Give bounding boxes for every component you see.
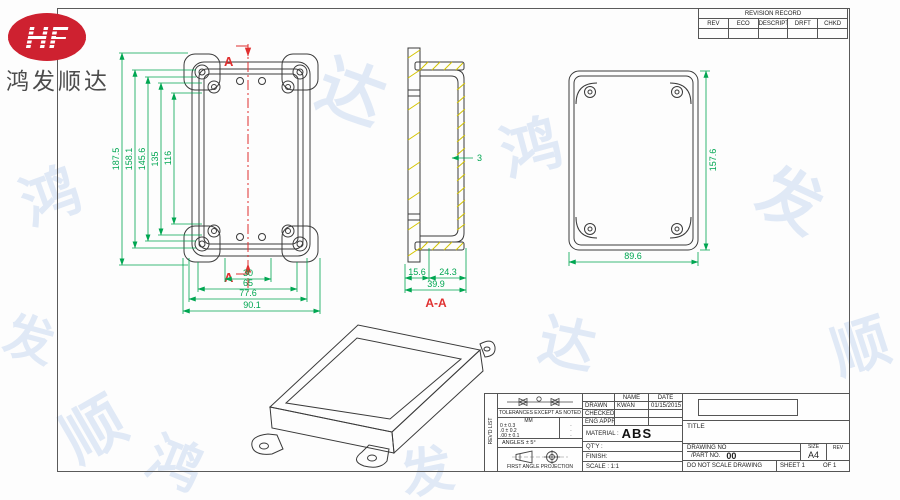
svg-text:89.6: 89.6: [624, 251, 642, 261]
eng-appr-label: ENG APPR: [583, 418, 615, 426]
section-dims: 3 15.6 24.3 39.9 A-A: [405, 153, 482, 310]
svg-text:15.6: 15.6: [408, 267, 426, 277]
finish-row: FINISH:: [583, 452, 682, 462]
logo-stripes: [8, 13, 86, 61]
section-label-top: A: [224, 54, 234, 69]
company-name: 鸿发顺达: [6, 62, 110, 96]
company-logo: HF: [8, 13, 86, 61]
title-row: TITLE: [683, 421, 849, 444]
section-label-bottom: A: [224, 270, 234, 285]
do-not-scale: DO NOT SCALE DRAWING: [683, 461, 777, 471]
revision-record-title: REVISION RECORD: [699, 9, 848, 19]
title-block: REV'D LIST TOLERANCES EXCEPT AS NOTED MM…: [484, 393, 850, 472]
section-cut-line: A A: [224, 44, 248, 292]
svg-text:39.9: 39.9: [427, 279, 445, 289]
sheet-of: OF 1: [823, 463, 849, 469]
tolerance-column: TOLERANCES EXCEPT AS NOTED MM 0 ± 0.3 .0…: [498, 394, 583, 471]
surface-symbols: [498, 394, 582, 409]
svg-text:116: 116: [163, 151, 173, 165]
title-column: TITLE DRAWING NO /PART NO. 00 SIZE A4 RE…: [683, 394, 849, 471]
angles-tolerance: ANGLES ± 5°: [498, 439, 582, 448]
drawing-sheet-canvas: { "logo": { "brand": "HF", "company": "鸿…: [0, 0, 900, 500]
side-strip-label: REV'D LIST: [488, 403, 494, 459]
section-view-label: A-A: [425, 296, 447, 310]
front-view: [184, 54, 318, 262]
projection-cell: FIRST ANGLE PROJECTION: [498, 448, 582, 471]
first-angle-projection-symbol: [512, 450, 568, 464]
material-row: MATERIAL : ABS: [583, 426, 682, 442]
col-eco: ECO: [728, 19, 758, 29]
title-logo-row: [683, 394, 849, 421]
svg-text:24.3: 24.3: [439, 267, 457, 277]
title-block-side-strip: REV'D LIST: [485, 394, 498, 471]
checked-label: CHECKED: [583, 410, 615, 418]
material-label: MATERIAL :: [586, 431, 619, 437]
part-no-value: 00: [726, 451, 736, 461]
projection-label: FIRST ANGLE PROJECTION: [507, 464, 573, 470]
section-hatching: [408, 50, 465, 256]
material-value: ABS: [622, 426, 652, 441]
tolerance-table: MM 0 ± 0.3 .0 ± 0.2 .00 ± 0.1 · · ·: [498, 418, 582, 439]
date-header: DATE: [649, 394, 682, 402]
svg-text:65: 65: [243, 278, 253, 288]
svg-text:135: 135: [150, 151, 160, 166]
svg-text:187.5: 187.5: [111, 148, 121, 171]
rev-cell-empty: [699, 29, 729, 39]
revision-record-table: REVISION RECORD REV ECO DESCRIPTION DRFT…: [698, 8, 848, 39]
rev-label: REV: [827, 444, 849, 460]
scale-row: SCALE : 1:1: [583, 462, 682, 471]
col-rev: REV: [699, 19, 729, 29]
tolerances-header: TOLERANCES EXCEPT AS NOTED: [498, 409, 582, 418]
back-view-dims: 157.6 89.6: [569, 71, 718, 266]
back-view: [569, 71, 698, 250]
front-dim-texts-vertical: 187.5 158.1 145.6 135 116: [111, 148, 173, 171]
name-header: NAME: [615, 394, 649, 402]
title-logo-box: [698, 399, 798, 416]
section-view: [408, 48, 464, 262]
qty-row: QT'Y :: [583, 442, 682, 452]
drawing-no-row: DRAWING NO /PART NO. 00 SIZE A4 REV: [683, 444, 849, 461]
isometric-view: [252, 325, 495, 467]
svg-text:30: 30: [243, 268, 253, 278]
svg-text:90.1: 90.1: [243, 300, 261, 310]
svg-text:158.1: 158.1: [124, 148, 134, 171]
col-drft: DRFT: [788, 19, 818, 29]
drawn-label: DRAWN: [583, 402, 615, 410]
surface-finish-symbols-svg: [505, 395, 575, 407]
drawn-date: 01/15/2015: [649, 402, 682, 410]
col-chkd: CHKD: [818, 19, 848, 29]
svg-text:77.6: 77.6: [239, 288, 257, 298]
wall-thickness-dim: 3: [477, 153, 482, 163]
col-description: DESCRIPTION: [758, 19, 788, 29]
sheet-number: SHEET 1: [777, 463, 823, 469]
approval-column: NAME DATE DRAWN KWAN 01/15/2015 CHECKED …: [583, 394, 683, 471]
size-value: A4: [801, 450, 826, 460]
bottom-row: DO NOT SCALE DRAWING SHEET 1 OF 1: [683, 461, 849, 471]
drawn-name: KWAN: [615, 402, 649, 410]
svg-text:157.6: 157.6: [708, 149, 718, 172]
svg-text:145.6: 145.6: [137, 148, 147, 171]
part-no-label: /PART NO.: [691, 453, 720, 459]
